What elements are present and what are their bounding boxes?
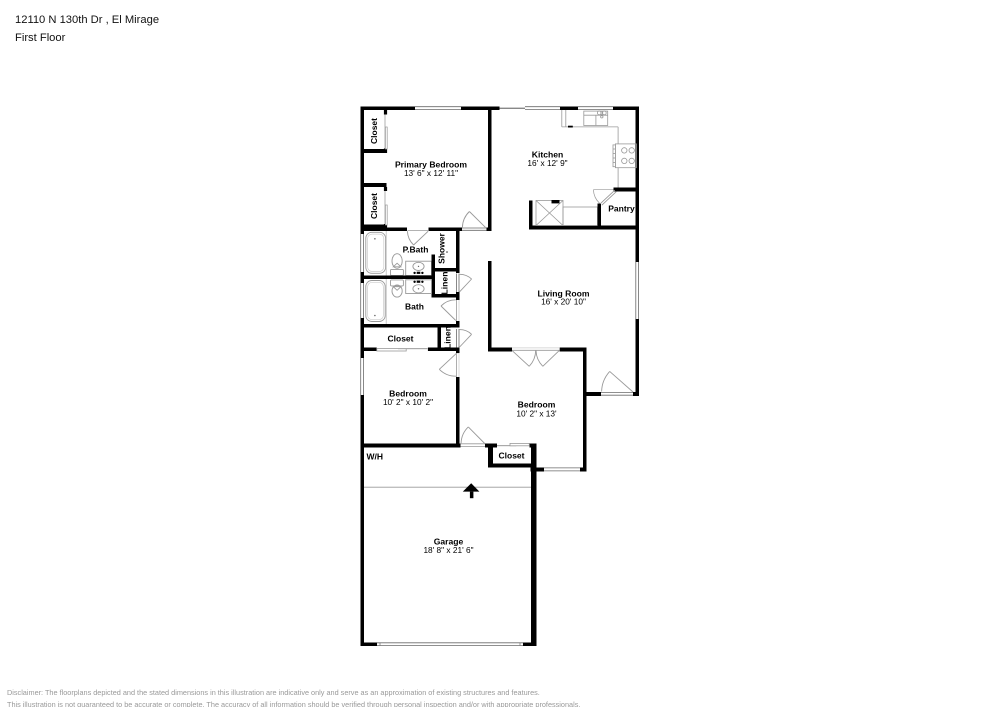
svg-text:10' 2" x 10' 2": 10' 2" x 10' 2" — [383, 397, 433, 407]
svg-text:16' x 20' 10": 16' x 20' 10" — [541, 297, 586, 307]
svg-text:10' 2" x 13': 10' 2" x 13' — [516, 409, 557, 419]
svg-text:Closet: Closet — [499, 451, 525, 461]
svg-text:Pantry: Pantry — [608, 204, 635, 214]
svg-text:Linen: Linen — [440, 272, 450, 295]
svg-text:Linen: Linen — [443, 326, 453, 349]
svg-text:W/H: W/H — [367, 452, 384, 462]
svg-text:Closet: Closet — [369, 193, 379, 219]
svg-text:P.Bath: P.Bath — [403, 245, 429, 255]
svg-text:Closet: Closet — [388, 334, 414, 344]
svg-text:16' x 12' 9": 16' x 12' 9" — [527, 158, 567, 168]
svg-text:13' 6" x 12' 11": 13' 6" x 12' 11" — [404, 168, 458, 178]
svg-text:Shower: Shower — [437, 232, 447, 263]
svg-text:Bath: Bath — [405, 302, 424, 312]
svg-text:Closet: Closet — [369, 118, 379, 144]
svg-text:18' 8" x 21' 6": 18' 8" x 21' 6" — [423, 545, 473, 555]
